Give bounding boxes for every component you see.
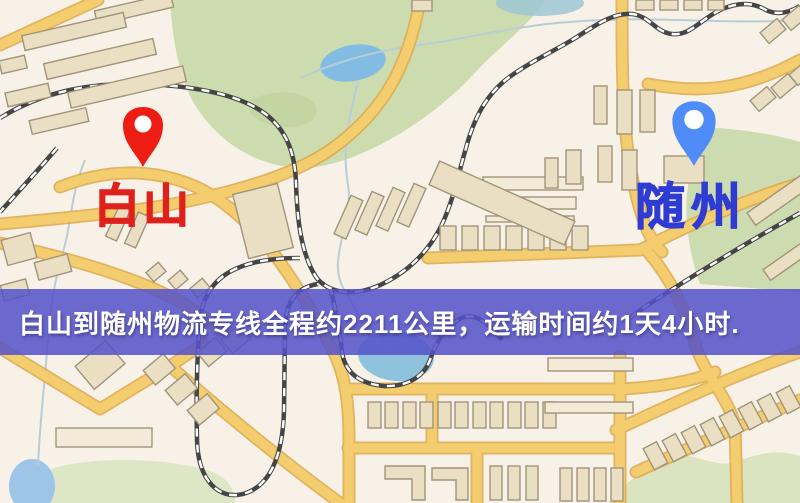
- map-canvas: 白山 随州: [0, 0, 800, 503]
- origin-city-label: 白山: [94, 180, 192, 232]
- route-info-text: 白山到随州物流专线全程约2211公里，运输时间约1天4小时.: [19, 304, 740, 341]
- logistics-map-image: 白山 随州 白山到随州物流专线全程约2211公里，运输时间约1天4小时.: [0, 0, 800, 503]
- route-info-banner: 白山到随州物流专线全程约2211公里，运输时间约1天4小时.: [0, 289, 800, 355]
- destination-city-label: 随州: [635, 179, 747, 235]
